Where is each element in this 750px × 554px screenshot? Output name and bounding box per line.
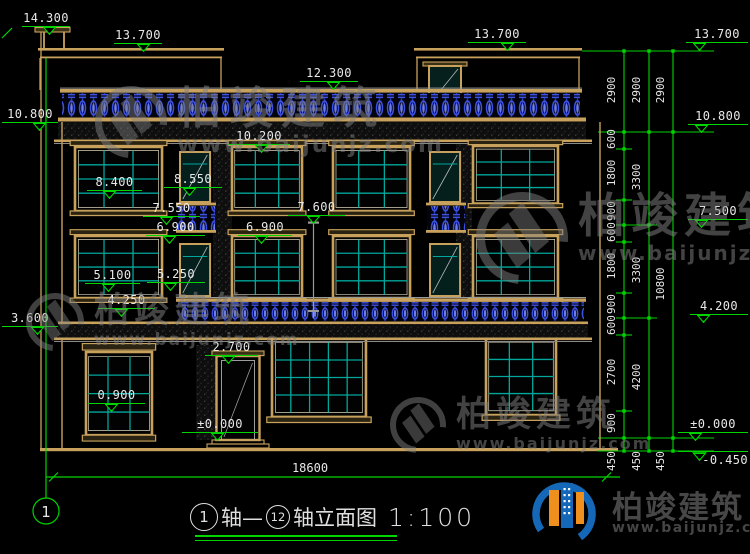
elevation-label-14300: 14.300 <box>22 12 70 27</box>
elevation-label-0900: 0.900 <box>88 389 145 404</box>
dim-outer-10800: 10800 <box>655 262 667 306</box>
title-scale: 1:100 <box>388 503 475 532</box>
dim-mid-3300b: 3300 <box>631 248 643 292</box>
elevation-label-10200: 10.200 <box>228 130 290 145</box>
title-axis-start-circle: 1 <box>190 503 218 531</box>
elevation-label-12300: 12.300 <box>300 67 358 82</box>
elevation-label-6900-left: 6.900 <box>146 221 205 236</box>
drawing-title: 1 轴— 12 轴立面图 1:100 <box>190 502 475 532</box>
elevation-label-7550: 7.550 <box>143 202 200 217</box>
dim-mid-3300a: 3300 <box>631 155 643 199</box>
baijun-logo-url: www.baijunjz.com <box>612 520 750 536</box>
elevation-label-0000-right: ±0.000 <box>678 418 748 433</box>
dim-mid-4200: 4200 <box>631 355 643 399</box>
elevation-label-4200: 4.200 <box>690 300 748 315</box>
elevation-label-5250: 5.250 <box>147 268 205 283</box>
elevation-label-minus-0450: -0.450 <box>678 451 748 467</box>
watermark-top: 柏竣建筑 www.baijunjz.com <box>95 86 444 158</box>
elevation-label-4250: 4.250 <box>98 294 155 309</box>
watermark-logo-icon <box>379 386 458 465</box>
elevation-label-6900-right: 6.900 <box>238 221 292 236</box>
dim-inner-600c: 600 <box>606 303 618 347</box>
elevation-label-13700-dim: 13.700 <box>686 28 748 43</box>
title-underline <box>195 535 397 537</box>
elevation-label-13700-left: 13.700 <box>114 29 162 44</box>
title-name: 轴立面图 <box>293 502 377 532</box>
elevation-label-10800-left: 10.800 <box>2 108 58 123</box>
title-join: 轴— <box>221 502 263 532</box>
watermark-logo-icon <box>457 173 587 303</box>
axis-bubble-1: 1 <box>33 503 59 521</box>
elevation-label-10800-right: 10.800 <box>688 110 748 125</box>
elevation-label-7600: 7.600 <box>288 201 345 216</box>
dim-outer-2900: 2900 <box>655 68 667 112</box>
dim-inner-2700: 2700 <box>606 350 618 394</box>
elevation-label-0000-entry: ±0.000 <box>182 418 258 433</box>
watermark-mid-left: 柏竣建筑 www.baijunjz.com <box>26 293 300 351</box>
elevation-label-8550: 8.550 <box>164 173 222 188</box>
dim-outer-450: 450 <box>655 439 667 483</box>
elevation-label-13700-tower: 13.700 <box>468 28 526 43</box>
annotation-overlay: 14.300 13.700 12.300 13.700 13.700 10.80… <box>0 0 750 554</box>
dim-inner-2900: 2900 <box>606 68 618 112</box>
elevation-label-2700: 2.700 <box>205 341 258 356</box>
elevation-label-3600: 3.600 <box>2 312 58 327</box>
title-underline-2 <box>195 540 397 541</box>
title-axis-end-circle: 12 <box>266 505 290 529</box>
overall-width-dim: 18600 <box>270 461 350 475</box>
dim-mid-2900: 2900 <box>631 68 643 112</box>
elevation-label-7500: 7.500 <box>688 205 748 220</box>
elevation-label-8400: 8.400 <box>87 176 142 191</box>
dim-mid-450: 450 <box>631 439 643 483</box>
cad-elevation-screenshot: 14.300 13.700 12.300 13.700 13.700 10.80… <box>0 0 750 554</box>
watermark-logo-icon <box>80 71 181 172</box>
elevation-label-5100: 5.100 <box>85 269 140 284</box>
baijun-logo-icon <box>524 474 608 550</box>
